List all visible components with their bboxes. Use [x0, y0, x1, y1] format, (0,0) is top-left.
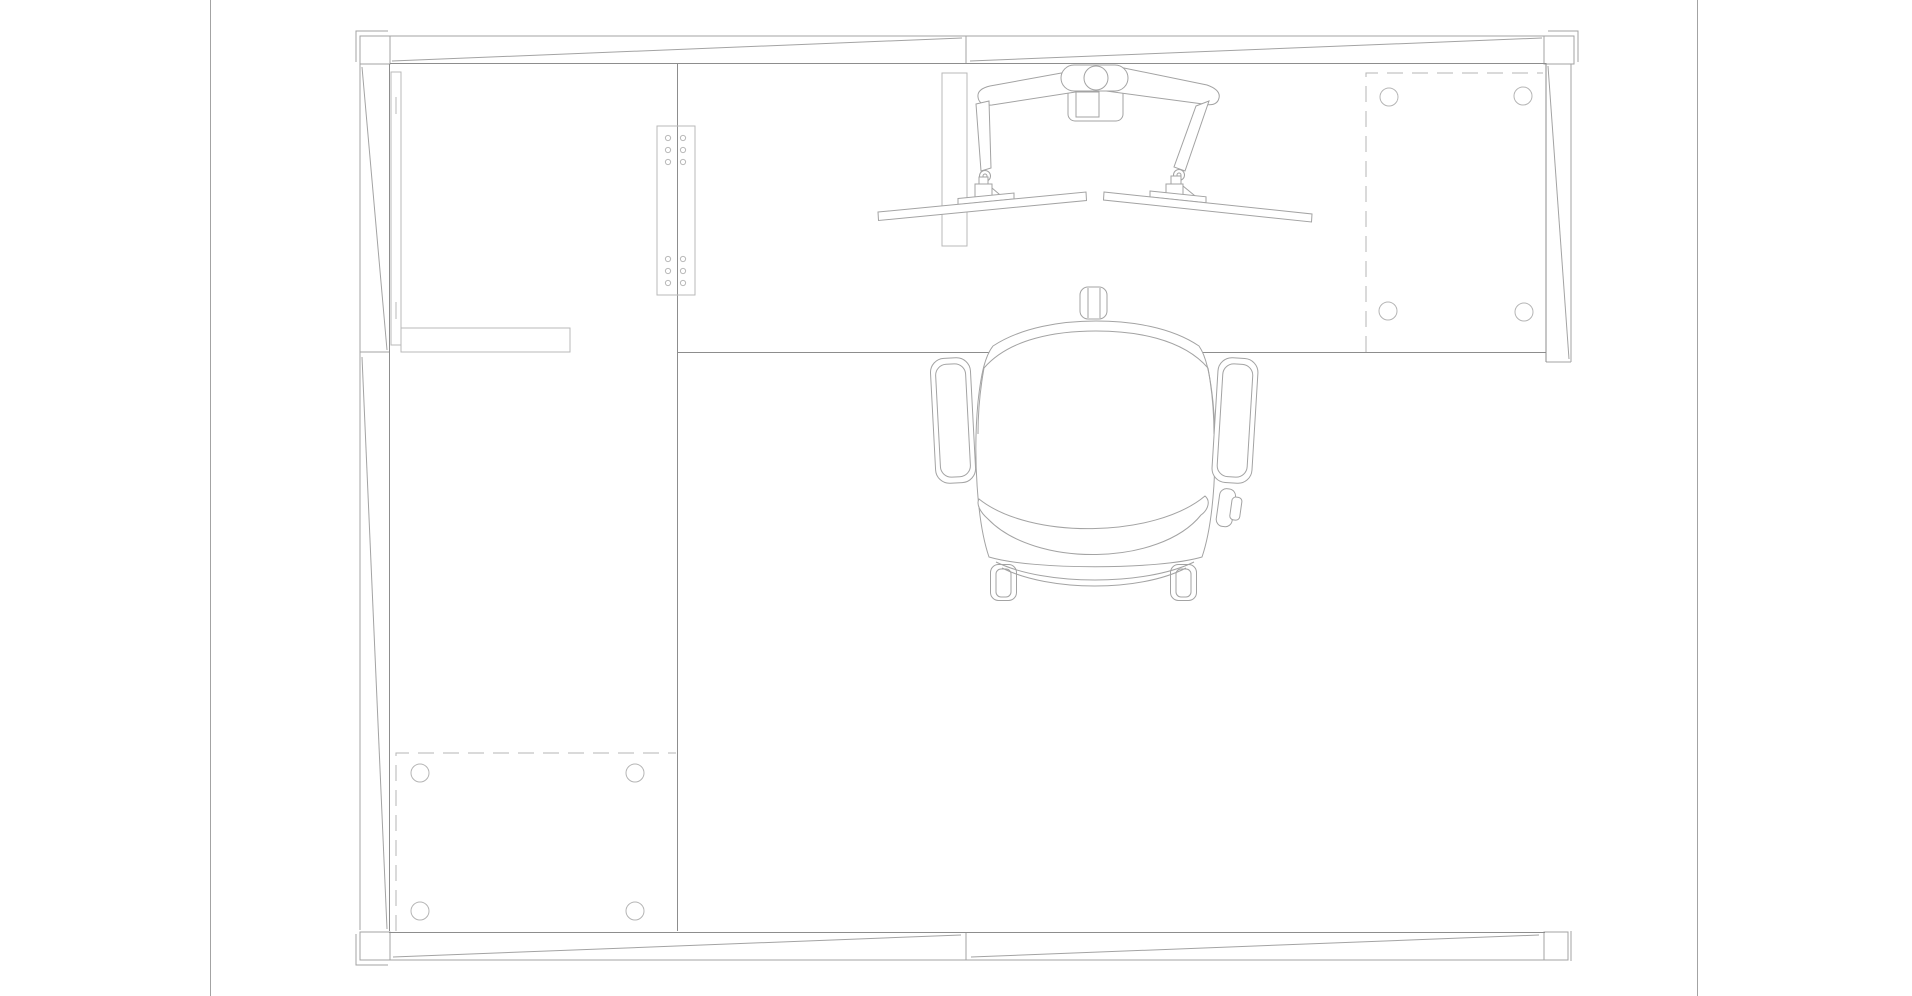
- armrest-left-outer: [930, 357, 976, 484]
- paper-background: [0, 0, 1912, 996]
- chair-headrest: [1080, 287, 1107, 319]
- floor-plan-svg: [0, 0, 1912, 996]
- armrest-right: [1211, 357, 1259, 484]
- headrest-outline: [1080, 287, 1107, 319]
- drawing-sheet: [0, 0, 1912, 996]
- armrest-right-outer: [1211, 357, 1259, 484]
- caster-left: [991, 565, 1017, 601]
- arm-pole-circle: [1084, 66, 1108, 90]
- armrest-left: [930, 357, 976, 484]
- right-mount-neck: [1171, 176, 1181, 184]
